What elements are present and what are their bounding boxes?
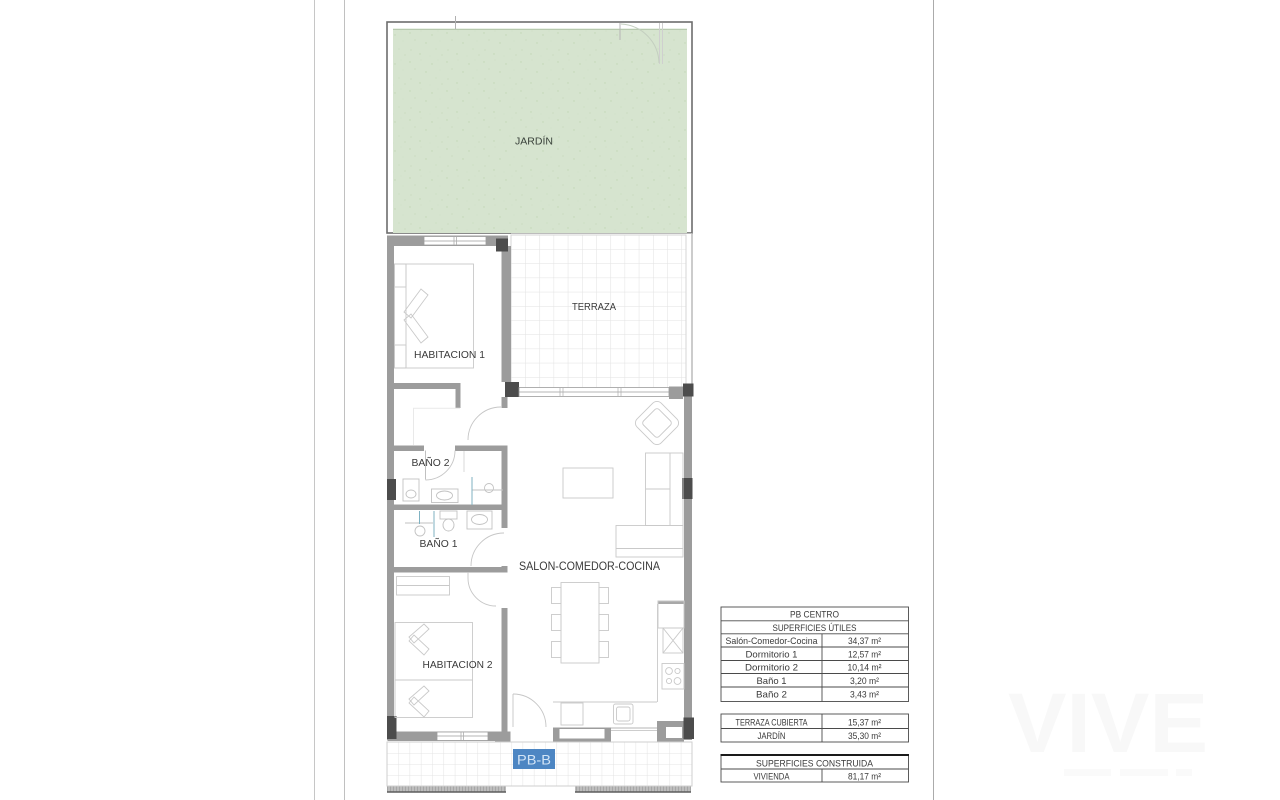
svg-text:Baño 2: Baño 2 [756, 690, 787, 701]
svg-text:81,17 m²: 81,17 m² [848, 772, 881, 783]
svg-text:SUPERFICIES ÚTILES: SUPERFICIES ÚTILES [773, 623, 857, 634]
svg-text:12,57 m²: 12,57 m² [848, 650, 881, 661]
svg-text:10,14 m²: 10,14 m² [848, 663, 882, 674]
svg-text:Baño 1: Baño 1 [757, 676, 787, 687]
svg-text:HABITACION 1: HABITACION 1 [414, 349, 485, 361]
svg-text:VIVIENDA: VIVIENDA [754, 772, 791, 783]
svg-text:3,20 m²: 3,20 m² [850, 676, 879, 687]
svg-text:HABITACION 2: HABITACION 2 [423, 659, 493, 671]
svg-text:JARDÍN: JARDÍN [515, 135, 553, 148]
svg-text:TERRAZA CUBIERTA: TERRAZA CUBIERTA [736, 718, 809, 729]
svg-text:TERRAZA: TERRAZA [572, 301, 616, 313]
svg-text:35,30 m²: 35,30 m² [848, 731, 881, 742]
svg-text:JARDÍN: JARDÍN [758, 731, 786, 742]
svg-text:Dormitorio 1: Dormitorio 1 [746, 650, 798, 661]
svg-text:PB-B: PB-B [517, 753, 551, 768]
svg-text:BAÑO 1: BAÑO 1 [420, 537, 458, 550]
svg-text:Dormitorio 2: Dormitorio 2 [745, 663, 798, 674]
svg-text:VIVE: VIVE [1008, 676, 1208, 770]
svg-text:BAÑO 2: BAÑO 2 [412, 456, 450, 469]
svg-text:Salón-Comedor-Cocina: Salón-Comedor-Cocina [726, 636, 819, 647]
svg-text:3,43 m²: 3,43 m² [850, 690, 879, 701]
svg-text:34,37 m²: 34,37 m² [848, 636, 881, 647]
svg-text:SALON-COMEDOR-COCINA: SALON-COMEDOR-COCINA [519, 561, 660, 573]
svg-text:15,37 m²: 15,37 m² [848, 718, 881, 729]
svg-text:SUPERFICIES CONSTRUIDA: SUPERFICIES CONSTRUIDA [756, 759, 874, 770]
svg-text:PB CENTRO: PB CENTRO [790, 610, 839, 621]
